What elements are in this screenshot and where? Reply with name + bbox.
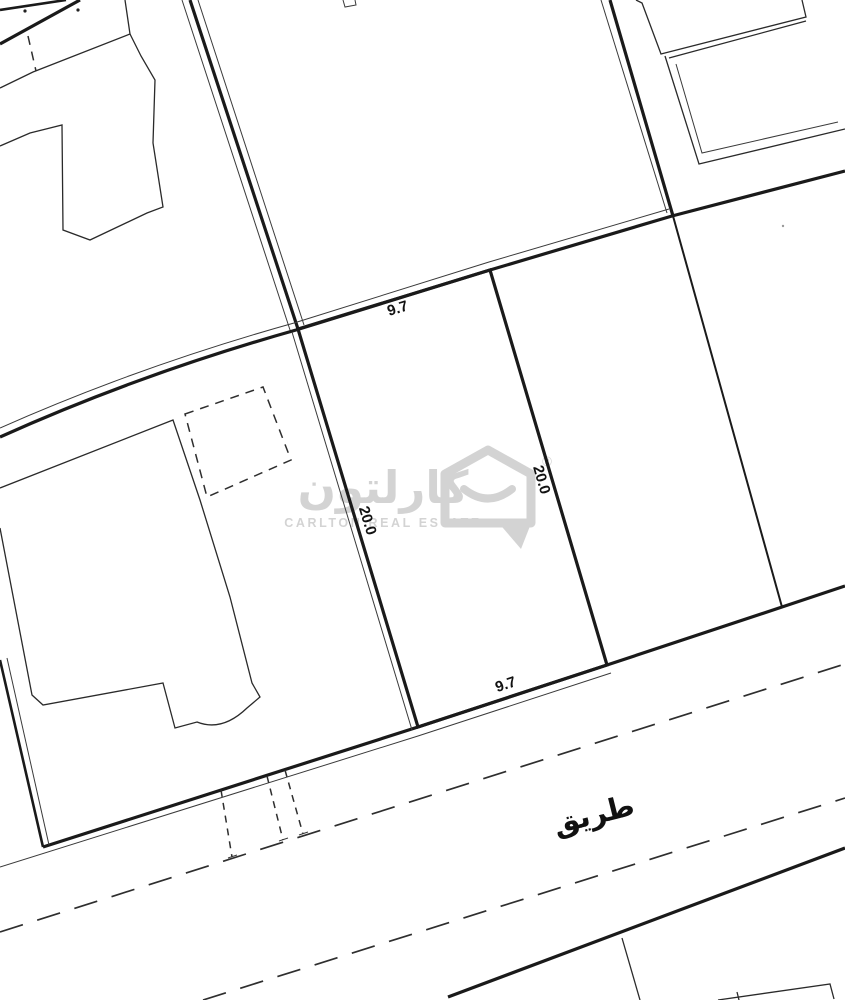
street-ne-edge-thin [601,0,667,213]
topright-building-lower-rect [665,21,845,164]
map-dot-2 [76,8,79,11]
topleft-dashed-stub [28,36,36,71]
topleft-bold-line-1 [0,0,66,10]
north-frontage-bold-line [0,171,845,437]
topleft-building-main-outline [0,34,163,240]
building-outlines [0,0,845,728]
west-parcel-boundary-thin [7,658,49,845]
road-name-label: طريق [549,788,637,841]
street-nw-edge-thin-left [182,0,291,333]
west-parcel-boundary-bold [0,660,43,847]
access-dashed-connector-1 [221,790,232,857]
south-road-edge-bold [43,586,845,847]
topleft-building-upper-wing [0,0,130,88]
street-nw-edge-bold [190,0,298,329]
map-dot-1 [23,9,26,12]
street-nw-edge-thin-right [198,0,304,325]
topleft-bold-line-2 [0,0,80,44]
east-parcel-boundary [673,216,782,607]
subject-plot-west-thin-line [292,332,412,730]
dimension-bottom: 9.7 [493,673,518,696]
carlton-watermark: كارلتون CARLTON REAL ESTATE ® [284,450,553,549]
left-building-dashed-annex [185,387,291,497]
topright-building-inner-line [676,64,838,153]
access-dashed-connector-2 [267,776,283,840]
topright-building-outer [636,0,806,54]
survey-map-canvas: كارلتون CARLTON REAL ESTATE ® [0,0,845,1000]
road-centerline-dashed-upper [0,664,845,932]
connector-foot-ticks [228,832,308,858]
map-dot-3 [782,225,784,227]
access-dashed-connector-3 [285,770,303,834]
left-building-outline [0,420,260,728]
bottom-right-structure-line [718,984,834,1000]
road-dashed-markings [0,664,845,1000]
bottom-right-tick [737,992,739,1000]
street-ne-edge-bold [610,0,673,216]
road-far-branch-line [622,938,640,1000]
south-road-edge-thin [0,673,611,867]
road-far-edge-bold [448,848,845,997]
survey-map-svg: كارلتون CARLTON REAL ESTATE ® [0,0,845,1000]
top-edge-notch [343,0,356,7]
